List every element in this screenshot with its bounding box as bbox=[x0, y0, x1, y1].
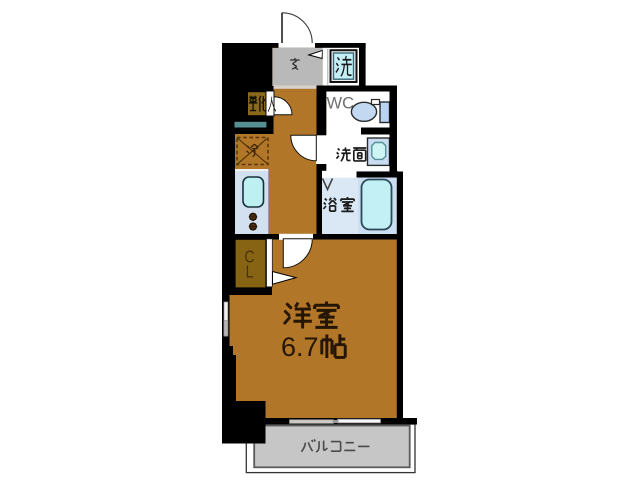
svg-text:WC: WC bbox=[327, 95, 355, 113]
svg-text:6.7: 6.7 bbox=[281, 332, 319, 362]
svg-text:L: L bbox=[246, 262, 254, 282]
